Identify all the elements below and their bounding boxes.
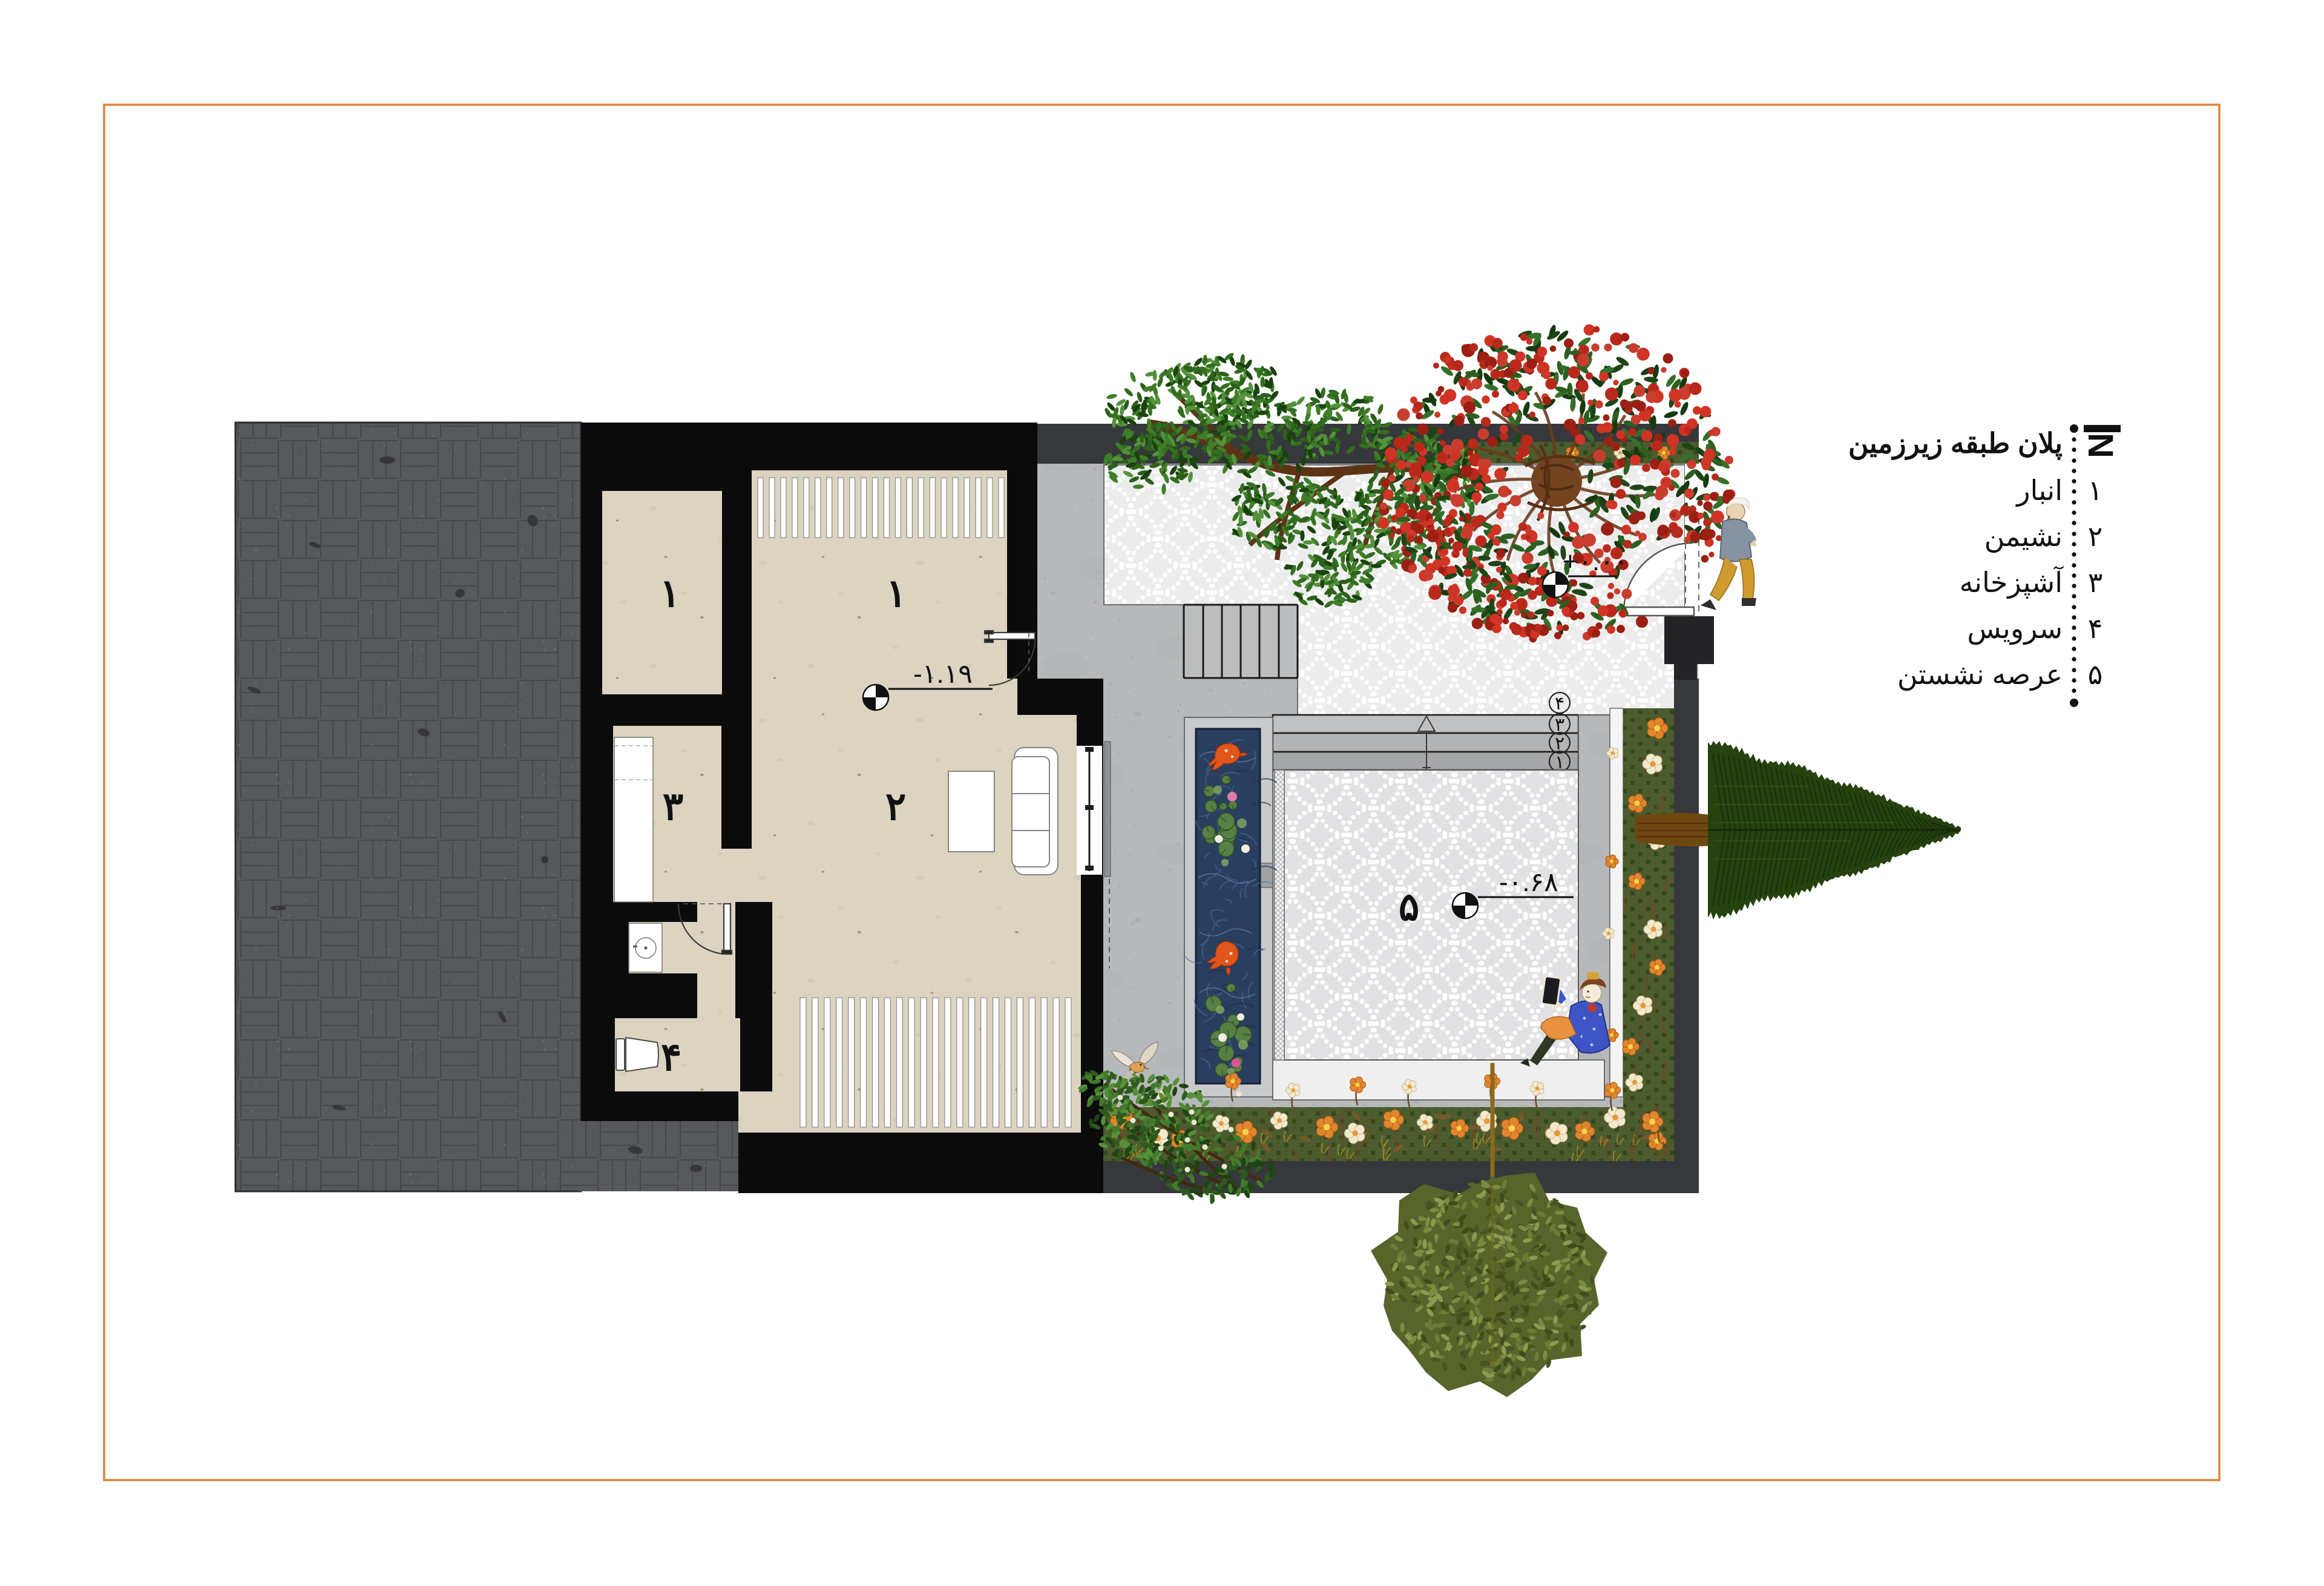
svg-text:N: N bbox=[2081, 433, 2120, 458]
svg-text:-۱.۱۹: -۱.۱۹ bbox=[913, 659, 973, 689]
svg-text:عرصه نشستن: عرصه نشستن bbox=[1897, 659, 2063, 691]
svg-text:۵: ۵ bbox=[2088, 659, 2103, 690]
svg-text:آشپزخانه: آشپزخانه bbox=[1959, 565, 2064, 599]
svg-text:۳: ۳ bbox=[2088, 567, 2103, 598]
svg-text:۱: ۱ bbox=[2088, 475, 2103, 506]
svg-text:۵: ۵ bbox=[1399, 885, 1419, 929]
svg-text:۴: ۴ bbox=[1555, 694, 1564, 714]
svg-text:۴: ۴ bbox=[661, 1035, 681, 1079]
svg-text:۲: ۲ bbox=[2088, 521, 2103, 552]
svg-text:۱: ۱ bbox=[886, 571, 907, 615]
svg-text:+۰.۰۰: +۰.۰۰ bbox=[1563, 547, 1629, 576]
svg-text:-۰.۶۸: -۰.۶۸ bbox=[1499, 867, 1558, 897]
svg-text:۲: ۲ bbox=[885, 785, 906, 828]
svg-text:نشیمن: نشیمن bbox=[1984, 521, 2063, 553]
svg-text:۱: ۱ bbox=[660, 571, 680, 615]
svg-text:انبار: انبار bbox=[2015, 475, 2063, 507]
svg-text:۳: ۳ bbox=[663, 785, 683, 828]
svg-text:۴: ۴ bbox=[2088, 613, 2103, 644]
svg-text:سرویس: سرویس bbox=[1967, 613, 2063, 645]
svg-text:پلان طبقه زیرزمین: پلان طبقه زیرزمین bbox=[1848, 427, 2063, 461]
